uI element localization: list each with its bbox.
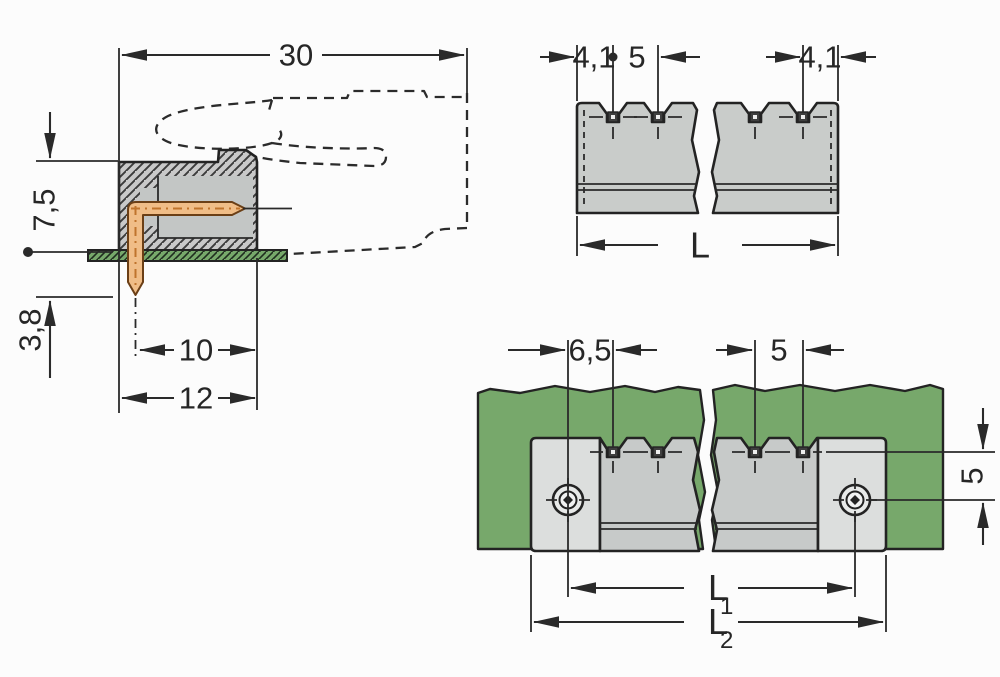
dim-label-overall-depth: 30 [279, 38, 313, 73]
dim-label-length: L [690, 225, 710, 266]
dim-label-hole-to-pin: 6,5 [568, 333, 611, 368]
dim-height-above-board: 7,5 [23, 112, 118, 257]
dim-label-row-to-hole: 5 [955, 467, 990, 484]
dim-total-length: L [577, 216, 838, 266]
dim-label-edge-pin-right: 4,1 [798, 40, 841, 75]
dim-top-pitches: 4,1 5 4,1 [540, 40, 876, 113]
dim-label-pitch-pcb: 5 [770, 333, 787, 368]
dim-label-pin-length: 3,8 [13, 308, 48, 351]
header-body-left [577, 103, 699, 213]
top-view: 4,1 5 4,1 L [540, 40, 876, 266]
dim-pin-length: 3,8 [13, 297, 114, 378]
dim-label-pitch-top: 5 [628, 40, 645, 75]
dim-label-body-depth: 12 [179, 381, 213, 416]
connector-drawing: 30 7,5 3,8 10 12 [0, 0, 1000, 677]
pcb-view: 6,5 5 5 L 1 L 2 [478, 333, 995, 655]
header-body-right [712, 103, 838, 213]
technical-drawing-page: 30 7,5 3,8 10 12 [0, 0, 1000, 677]
dim-label-height: 7,5 [27, 188, 62, 231]
dim-body-depth: 12 [122, 381, 255, 416]
dim-label-edge-pin-left: 4,1 [572, 40, 615, 75]
side-view: 30 7,5 3,8 10 12 [13, 38, 468, 416]
dim-label-overall-length-sub: 2 [720, 627, 733, 654]
dim-label-pin-to-front: 10 [179, 333, 213, 368]
